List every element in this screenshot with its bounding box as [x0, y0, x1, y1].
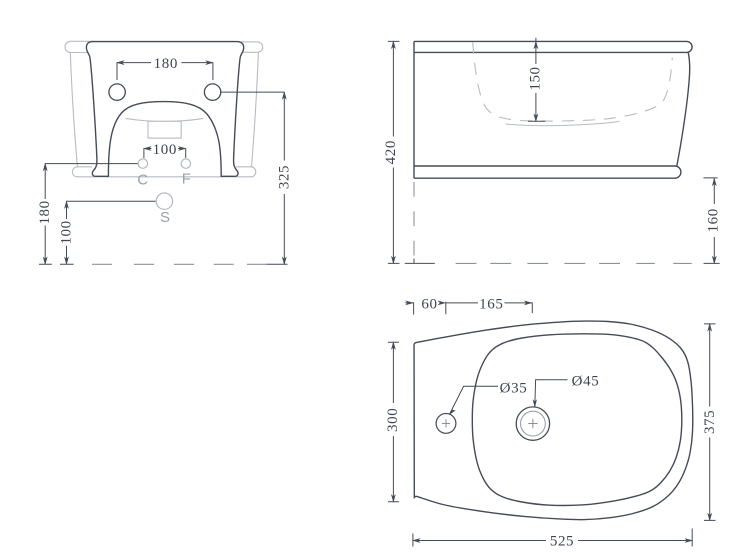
svg-text:420: 420 [383, 140, 399, 164]
svg-text:180: 180 [154, 56, 178, 72]
svg-text:100: 100 [58, 220, 74, 244]
svg-text:160: 160 [706, 208, 722, 232]
svg-text:F: F [182, 171, 191, 188]
svg-text:150: 150 [528, 66, 544, 90]
svg-text:525: 525 [550, 534, 574, 550]
svg-text:C: C [137, 171, 148, 188]
svg-text:375: 375 [702, 410, 718, 434]
svg-text:180: 180 [37, 200, 53, 224]
svg-text:Ø45: Ø45 [572, 373, 600, 389]
svg-text:165: 165 [479, 296, 503, 312]
svg-text:325: 325 [277, 165, 293, 189]
svg-text:100: 100 [153, 142, 177, 158]
svg-text:60: 60 [421, 296, 437, 312]
svg-text:S: S [160, 209, 170, 226]
svg-text:Ø35: Ø35 [500, 380, 528, 396]
svg-text:300: 300 [385, 408, 401, 432]
